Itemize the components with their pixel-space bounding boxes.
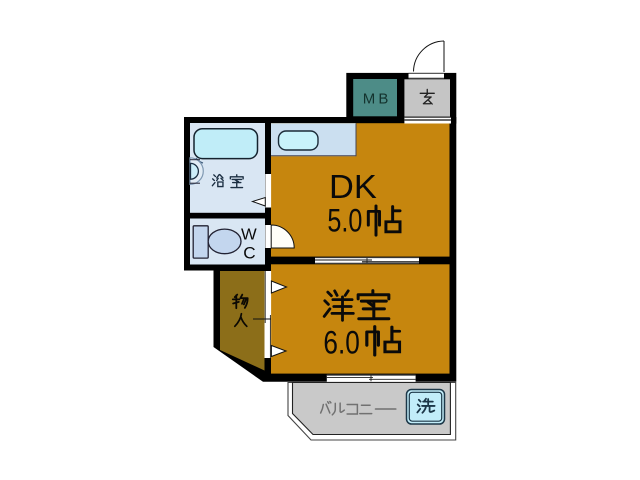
svg-text:5.0: 5.0	[327, 202, 362, 238]
svg-text:6.0: 6.0	[323, 325, 359, 361]
svg-text:W: W	[241, 227, 257, 244]
svg-text:C: C	[243, 245, 255, 263]
svg-text:DK: DK	[329, 168, 377, 205]
